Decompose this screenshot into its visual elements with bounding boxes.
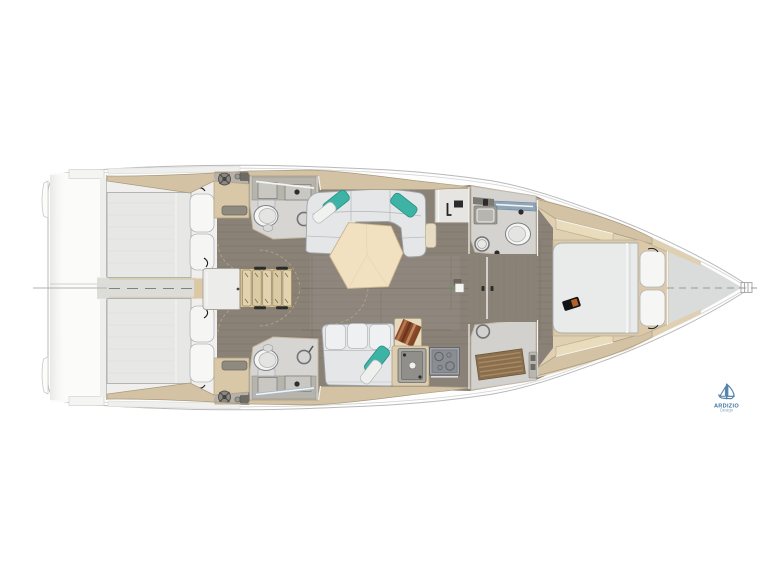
svg-text:Design: Design [720,407,734,412]
